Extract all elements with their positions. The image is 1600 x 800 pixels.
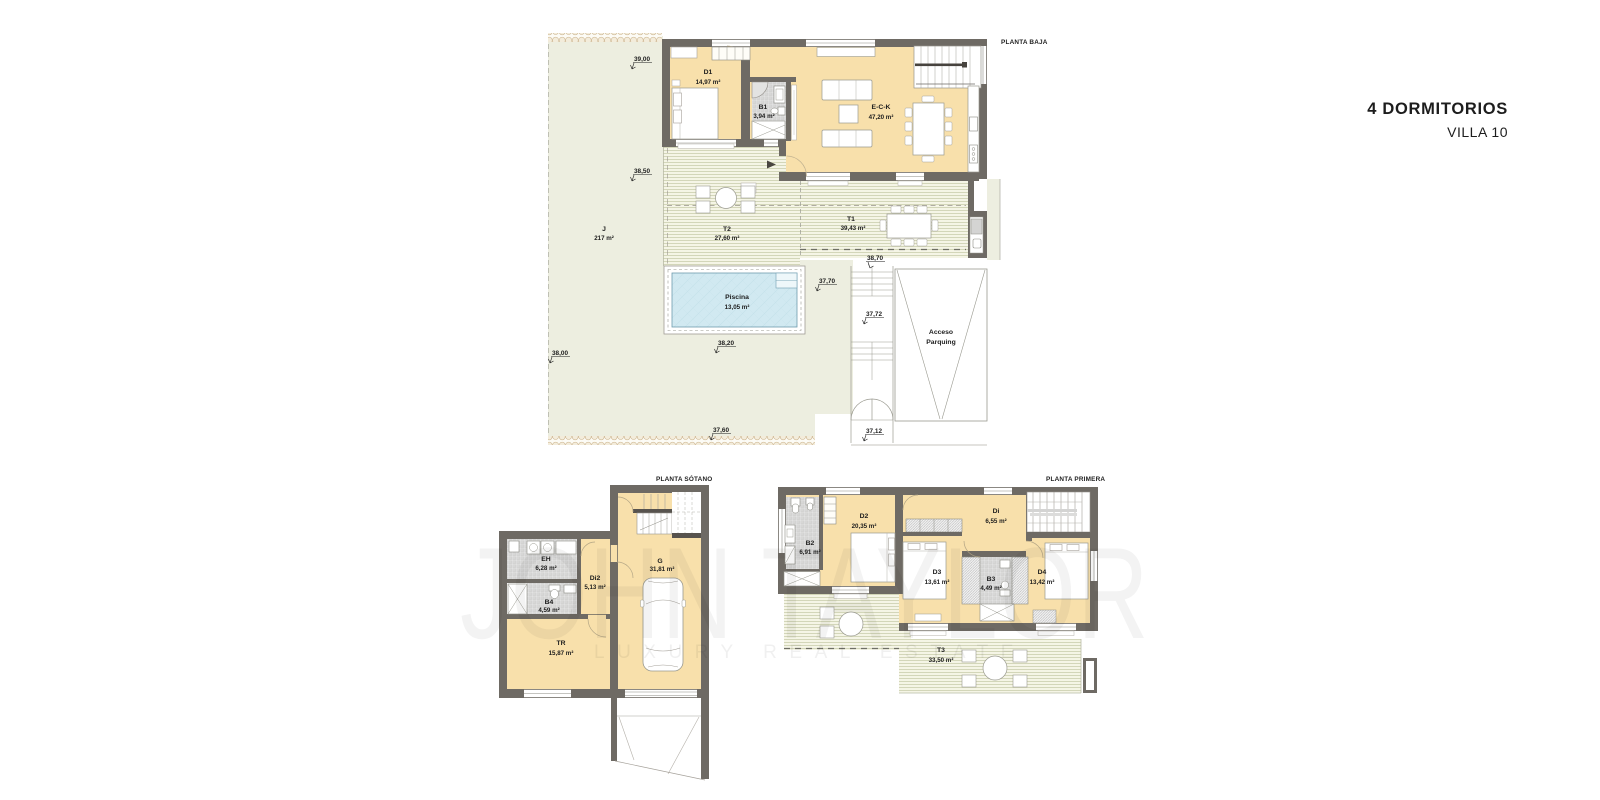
- svg-text:B1: B1: [759, 104, 768, 111]
- svg-text:4 DORMITORIOS: 4 DORMITORIOS: [1367, 100, 1508, 118]
- svg-text:38,00: 38,00: [552, 350, 568, 357]
- svg-text:VILLA 10: VILLA 10: [1447, 124, 1508, 140]
- svg-text:Di: Di: [993, 508, 1000, 515]
- svg-text:PLANTA BAJA: PLANTA BAJA: [1001, 39, 1048, 46]
- svg-text:37,72: 37,72: [866, 311, 882, 318]
- svg-text:T2: T2: [723, 226, 731, 233]
- svg-text:38,70: 38,70: [867, 255, 883, 262]
- svg-text:38,50: 38,50: [634, 168, 650, 175]
- svg-text:47,20 m²: 47,20 m²: [869, 114, 894, 121]
- svg-text:3,94 m²: 3,94 m²: [753, 113, 774, 120]
- svg-text:D2: D2: [860, 513, 869, 520]
- svg-text:D1: D1: [704, 69, 713, 76]
- svg-text:38,20: 38,20: [718, 340, 734, 347]
- svg-text:Acceso: Acceso: [929, 329, 953, 336]
- svg-text:37,60: 37,60: [713, 427, 729, 434]
- svg-text:E-C-K: E-C-K: [872, 104, 891, 111]
- svg-text:Parquing: Parquing: [926, 339, 955, 346]
- svg-text:39,00: 39,00: [634, 56, 650, 63]
- svg-text:J: J: [602, 226, 606, 233]
- svg-text:Piscina: Piscina: [725, 294, 749, 301]
- svg-text:14,97 m²: 14,97 m²: [696, 79, 721, 86]
- svg-text:37,12: 37,12: [866, 428, 882, 435]
- svg-text:T1: T1: [847, 216, 855, 223]
- svg-text:27,60 m²: 27,60 m²: [715, 235, 740, 242]
- svg-text:217 m²: 217 m²: [594, 235, 614, 242]
- svg-text:PLANTA PRIMERA: PLANTA PRIMERA: [1046, 476, 1105, 483]
- svg-text:13,05 m²: 13,05 m²: [725, 304, 750, 311]
- svg-text:37,70: 37,70: [819, 278, 835, 285]
- svg-text:39,43 m²: 39,43 m²: [841, 225, 866, 232]
- svg-text:PLANTA SÓTANO: PLANTA SÓTANO: [656, 474, 712, 483]
- svg-text:LUXURY REAL ESTATE: LUXURY REAL ESTATE: [594, 642, 1026, 663]
